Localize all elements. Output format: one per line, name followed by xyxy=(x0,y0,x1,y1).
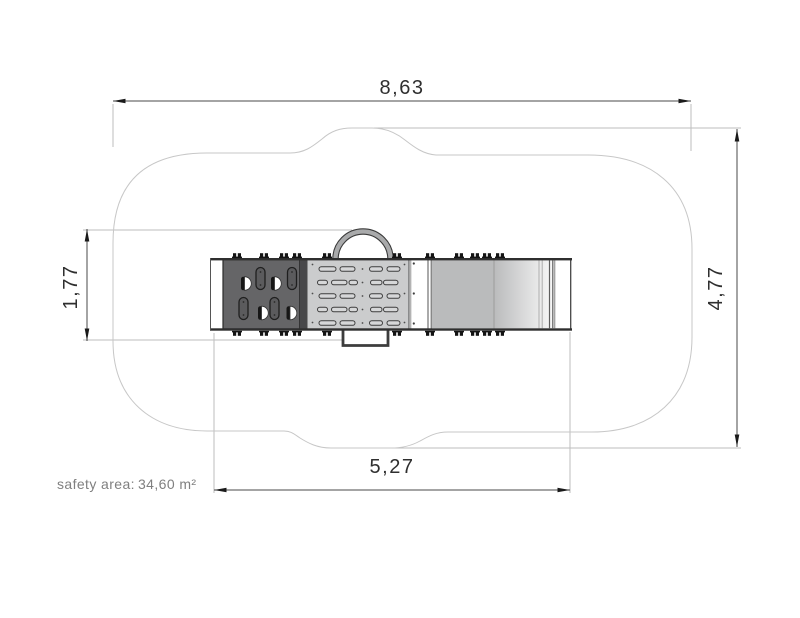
plan-drawing-canvas: 8,63 4,77 1,77 5,27 safety area: 34,60 m… xyxy=(0,0,800,618)
corner-post xyxy=(300,260,308,330)
arrowhead-left xyxy=(113,99,126,104)
extension-lines xyxy=(83,104,741,493)
arrowhead-right xyxy=(558,488,571,493)
arrowhead-down xyxy=(85,329,90,342)
safety-area-value: 34,60 m² xyxy=(138,476,196,492)
arrowhead-right xyxy=(679,99,692,104)
climbing-panel xyxy=(223,260,307,330)
dim-unit-length-value: 5,27 xyxy=(370,456,415,478)
crawl-panel xyxy=(307,260,411,330)
bolt-tabs-top xyxy=(232,253,505,258)
plan-drawing-page: 8,63 4,77 1,77 5,27 safety area: 34,60 m… xyxy=(0,0,800,618)
dim-overall-width: 8,63 xyxy=(113,77,691,103)
slide xyxy=(413,259,571,330)
equipment-plan-view xyxy=(210,229,572,346)
safety-area-note: safety area: 34,60 m² xyxy=(57,476,196,492)
dim-overall-height: 4,77 xyxy=(705,129,739,447)
dim-overall-width-value: 8,63 xyxy=(380,77,425,99)
arrowhead-up xyxy=(85,229,90,242)
dim-unit-length: 5,27 xyxy=(214,456,570,492)
safety-area-label: safety area: xyxy=(57,476,135,492)
dim-unit-depth: 1,77 xyxy=(60,229,89,341)
dim-unit-depth-value: 1,77 xyxy=(60,265,82,310)
grab-arch xyxy=(333,229,393,259)
dim-overall-height-value: 4,77 xyxy=(705,266,727,311)
arrowhead-left xyxy=(214,488,227,493)
arrowhead-up xyxy=(735,129,740,142)
step-bracket xyxy=(343,329,388,346)
arrowhead-down xyxy=(735,435,740,448)
